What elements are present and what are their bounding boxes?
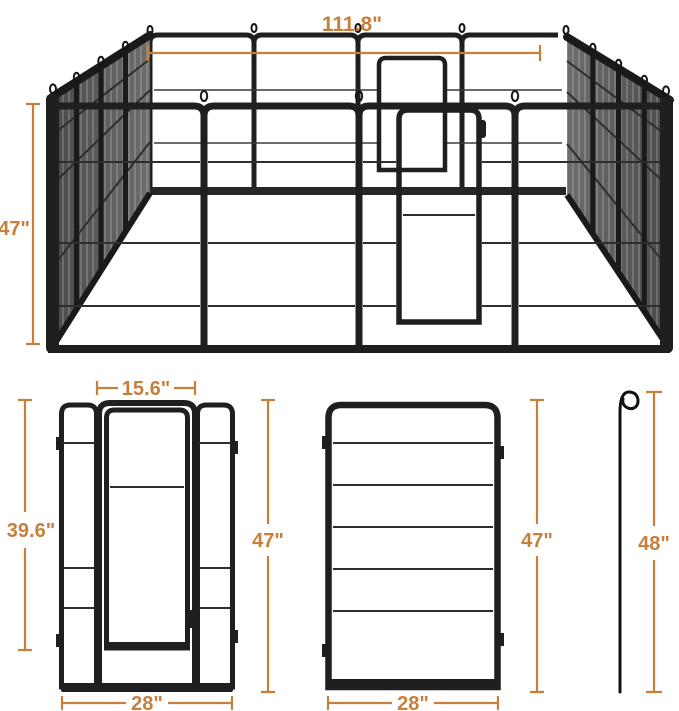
ground-stake-figure: 48" — [620, 392, 670, 692]
stake-height-label: 48" — [638, 533, 670, 555]
dim-stake-height: 48" — [638, 392, 670, 692]
door-panel-width-label: 28" — [131, 693, 163, 711]
dim-door-height: 39.6" — [7, 400, 55, 650]
door-width-label: 15.6" — [122, 378, 170, 400]
plain-panel-rails — [333, 443, 493, 611]
panel-width-label: 28" — [397, 693, 429, 711]
front-wall-bottom-rail — [48, 345, 670, 353]
panel-height-left-label: 47" — [252, 530, 284, 552]
back-door — [379, 58, 445, 170]
plain-panel-side-tabs — [322, 436, 504, 657]
door-panel-left-section — [62, 405, 97, 687]
dim-panel-width: 28" — [328, 693, 498, 711]
door-panel-bottom-bar — [61, 683, 233, 692]
front-right-corner-post — [660, 96, 673, 353]
plain-panel — [329, 405, 498, 687]
playpen-3d-view: 111.8" 47" — [0, 13, 673, 353]
front-left-corner-post — [46, 94, 59, 353]
door-leaf — [107, 410, 188, 648]
door-panel-rails — [63, 443, 231, 608]
back-panel — [254, 35, 358, 192]
door-panel-right-section — [198, 405, 233, 687]
door-panel-figure: 15.6" 39.6" 28" — [7, 378, 238, 711]
plain-panel-figure: 47" 47" 28" — [252, 400, 553, 711]
plain-panel-bottom-bar — [330, 679, 496, 688]
overall-width-label: 111.8" — [322, 13, 382, 36]
overall-height-label: 47" — [0, 218, 30, 240]
front-door-latch — [477, 120, 486, 138]
right-side-wall — [567, 37, 670, 350]
ground-stake — [620, 392, 638, 692]
left-side-wall — [52, 35, 150, 348]
door-latch — [186, 610, 198, 628]
panel-height-right-label: 47" — [521, 530, 553, 552]
door-panel-side-tabs — [56, 437, 238, 647]
dim-panel-height-left: 47" — [252, 400, 284, 692]
door-height-label: 39.6" — [7, 520, 55, 542]
dim-overall-height: 47" — [0, 104, 40, 344]
product-dimension-diagram: 111.8" 47" 15.6" 39.6" — [0, 0, 679, 711]
dim-panel-height-right: 47" — [521, 400, 553, 692]
dim-door-panel-width: 28" — [62, 693, 232, 711]
playpen-diagram-svg: 111.8" 47" 15.6" 39.6" — [0, 0, 679, 711]
dim-door-width: 15.6" — [97, 378, 195, 400]
